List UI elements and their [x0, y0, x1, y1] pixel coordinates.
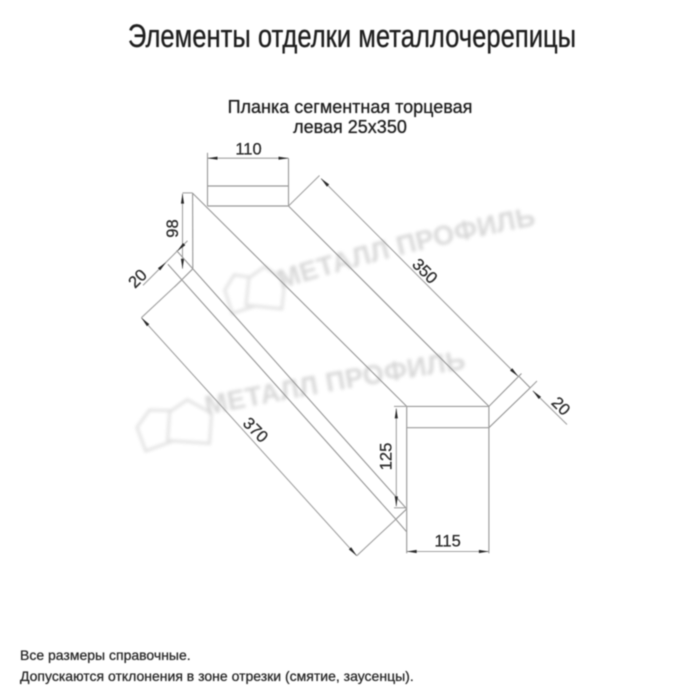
svg-text:350: 350 — [408, 255, 440, 287]
svg-text:20: 20 — [548, 394, 574, 420]
svg-text:115: 115 — [434, 533, 460, 551]
svg-text:98: 98 — [164, 219, 182, 237]
svg-text:125: 125 — [378, 443, 396, 471]
svg-text:МЕТАЛЛ ПРОФИЛЬ: МЕТАЛЛ ПРОФИЛЬ — [274, 201, 538, 294]
svg-text:370: 370 — [239, 414, 271, 446]
svg-text:20: 20 — [125, 266, 151, 292]
svg-text:МЕТАЛЛ ПРОФИЛЬ: МЕТАЛЛ ПРОФИЛЬ — [202, 345, 467, 421]
svg-text:110: 110 — [235, 141, 261, 159]
